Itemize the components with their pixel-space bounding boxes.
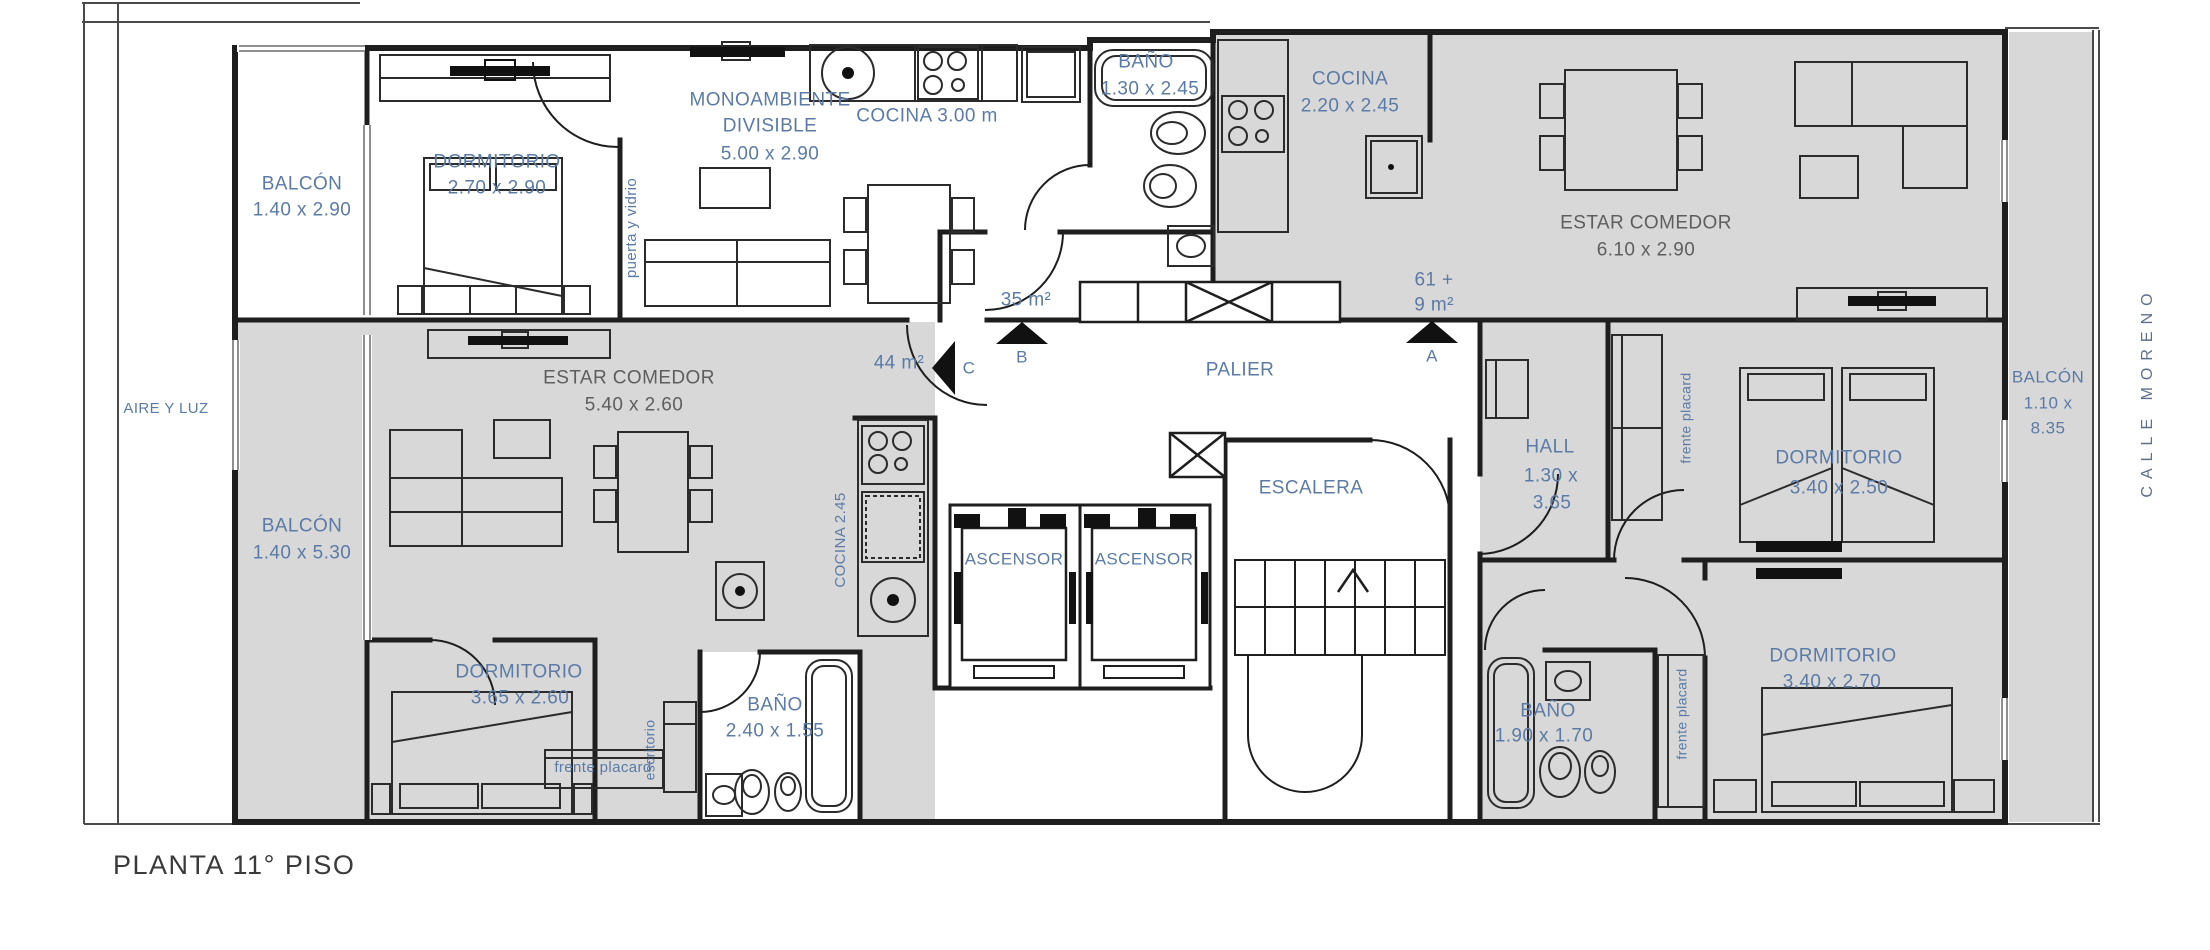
balcon-b-dims: 1.40 x 2.90 xyxy=(253,201,351,222)
cocina-b-label: COCINA 3.00 m xyxy=(856,107,997,128)
bano-c-dims: 2.40 x 1.55 xyxy=(726,722,824,743)
street-name-label: CALLE MORENO xyxy=(2139,286,2157,497)
dormitorio-a2-name: DORMITORIO xyxy=(1769,647,1896,668)
cocina-a-dims: 2.20 x 2.45 xyxy=(1301,97,1399,118)
cocina-a-name: COCINA xyxy=(1312,70,1388,91)
area-a-line2: 9 m² xyxy=(1414,296,1454,317)
marker-b: B xyxy=(1016,349,1028,368)
dormitorio-c-name: DORMITORIO xyxy=(455,663,582,684)
monoambiente-line2: DIVISIBLE xyxy=(723,117,817,138)
aire-y-luz-label: AIRE Y LUZ xyxy=(123,401,208,418)
area-a-line1: 61 + xyxy=(1414,271,1453,292)
puerta-y-vidrio-label: puerta y vidrio xyxy=(624,178,641,278)
escalera-label: ESCALERA xyxy=(1259,479,1364,500)
estar-a-dims: 6.10 x 2.90 xyxy=(1597,241,1695,262)
monoambiente-line1: MONOAMBIENTE xyxy=(689,91,850,112)
palier-label: PALIER xyxy=(1206,361,1275,382)
monoambiente-dims: 5.00 x 2.90 xyxy=(721,145,819,166)
frente-placard-a-lower: frente placard xyxy=(1674,668,1689,759)
balcon-c-name: BALCÓN xyxy=(262,517,343,538)
hall-dims2: 3.65 xyxy=(1533,494,1572,515)
dormitorio-a2-dims: 3.40 x 2.70 xyxy=(1783,673,1881,694)
balcon-c-dims: 1.40 x 5.30 xyxy=(253,544,351,565)
dormitorio-b-dims: 2.70 x 2.90 xyxy=(448,179,546,200)
marker-a: A xyxy=(1426,348,1438,367)
hall-name: HALL xyxy=(1525,438,1574,459)
ascensor-1-label: ASCENSOR xyxy=(965,551,1064,570)
bano-a-name: BAÑO xyxy=(1520,702,1575,723)
balcon-b-name: BALCÓN xyxy=(262,175,343,196)
dormitorio-a1-dims: 3.40 x 2.50 xyxy=(1790,479,1888,500)
bano-b-name: BAÑO xyxy=(1118,53,1173,74)
bano-c-name: BAÑO xyxy=(747,696,802,717)
dormitorio-c-dims: 3.65 x 2.60 xyxy=(471,689,569,710)
page-title: PLANTA 11° PISO xyxy=(113,850,355,881)
floor-plan-drawing xyxy=(0,0,2210,950)
floor-plan: AIRE Y LUZ BALCÓN 1.40 x 2.90 DORMITORIO… xyxy=(0,0,2210,950)
balcon-a-dims1: 1.10 x xyxy=(2024,395,2073,414)
hall-dims1: 1.30 x xyxy=(1524,467,1578,488)
estar-a-name: ESTAR COMEDOR xyxy=(1560,214,1732,235)
cocina-c-label: COCINA 2.45 xyxy=(833,492,850,587)
dormitorio-a1-name: DORMITORIO xyxy=(1775,449,1902,470)
area-c-label: 44 m² xyxy=(874,354,925,375)
marker-c: C xyxy=(963,360,976,379)
dormitorio-b-name: DORMITORIO xyxy=(433,153,560,174)
estar-c-dims: 5.40 x 2.60 xyxy=(585,396,683,417)
bano-a-dims: 1.90 x 1.70 xyxy=(1495,727,1593,748)
ascensor-2-label: ASCENSOR xyxy=(1095,551,1194,570)
frente-placard-a-upper: frente placard xyxy=(1678,372,1693,463)
area-b-label: 35 m² xyxy=(1001,291,1052,312)
balcon-a-dims2: 8.35 xyxy=(2031,420,2066,439)
frente-placard-c-label: frente placard xyxy=(554,760,651,777)
balcon-a-name: BALCÓN xyxy=(2012,369,2084,388)
estar-c-name: ESTAR COMEDOR xyxy=(543,369,715,390)
bano-b-dims: 1.30 x 2.45 xyxy=(1101,80,1199,101)
